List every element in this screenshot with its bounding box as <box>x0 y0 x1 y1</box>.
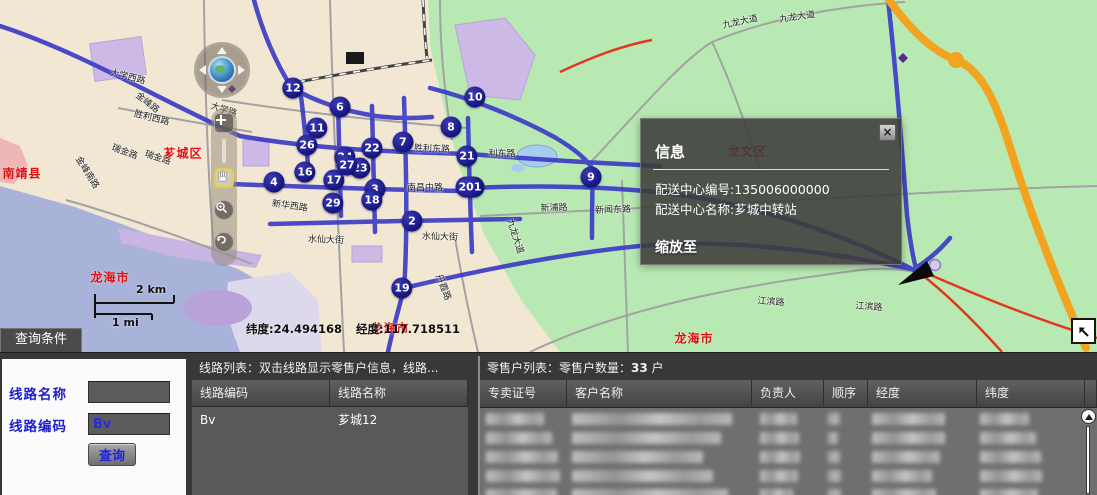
redacted-cell <box>872 413 945 425</box>
popup-close-button[interactable]: × <box>879 124 896 141</box>
map-pan-control[interactable] <box>194 42 250 98</box>
pan-hand-tool-button[interactable] <box>214 168 234 188</box>
redacted-cell <box>828 432 838 444</box>
retailer-row-redacted[interactable] <box>480 488 1097 495</box>
redacted-cell <box>828 451 840 463</box>
app-window: 金峰路大学西路瑞金路瑞金路金峰南路大学路胜利西路新华西路水仙大街水仙大街南昌中路… <box>0 0 1097 495</box>
redacted-cell <box>486 432 552 444</box>
retailer-row-redacted[interactable] <box>480 431 1097 446</box>
route-stop-marker-7[interactable]: 7 <box>393 132 414 153</box>
cursor-coordinates: 纬度:24.494168经度:117.718511 <box>246 321 474 337</box>
scale-km-label: 2 km <box>136 283 166 296</box>
route-stop-marker-6[interactable]: 6 <box>330 97 351 118</box>
retailer-row-redacted[interactable] <box>480 412 1097 427</box>
pan-left-arrow-icon[interactable] <box>199 65 206 75</box>
redacted-cell <box>872 432 945 444</box>
redacted-cell <box>572 432 721 444</box>
retailer-list-title: 零售户列表：零售户数量：33 户 <box>480 356 1097 381</box>
route-list-title: 线路列表：双击线路显示零售户信息，线路... <box>192 356 468 381</box>
bottom-panel: 线路名称 线路编码 查询 线路列表：双击线路显示零售户信息，线路... 线路编码… <box>0 352 1097 495</box>
magnifier-zoom-button[interactable] <box>214 200 234 220</box>
route-name-input[interactable] <box>88 381 170 403</box>
route-name-cell: 芗城12 <box>330 407 468 433</box>
tab-query-conditions[interactable]: 查询条件 <box>0 328 82 352</box>
route-code-label: 线路编码 <box>9 415 67 435</box>
pan-right-arrow-icon[interactable] <box>238 65 245 75</box>
redacted-cell <box>980 432 1036 444</box>
scrollbar-track[interactable] <box>1086 426 1090 494</box>
popup-divider <box>653 169 889 170</box>
collapse-panel-button[interactable] <box>1071 318 1096 344</box>
column-longitude[interactable]: 经度 <box>868 380 977 408</box>
redacted-cell <box>980 470 1042 482</box>
globe-icon[interactable] <box>208 56 236 84</box>
delivery-center-name: 配送中心名称:芗城中转站 <box>655 199 797 218</box>
zoom-to-link[interactable]: 缩放至 <box>655 237 697 257</box>
redacted-cell <box>828 413 840 425</box>
zoom-in-button[interactable] <box>214 113 234 133</box>
redacted-cell <box>760 489 793 495</box>
retailer-scrollbar <box>1081 409 1096 495</box>
route-stop-marker-8[interactable]: 8 <box>441 117 462 138</box>
redacted-cell <box>872 451 940 463</box>
route-name-label: 线路名称 <box>9 383 67 403</box>
query-button[interactable]: 查询 <box>88 443 136 466</box>
retailer-header-row: 专卖证号 客户名称 负责人 顺序 经度 纬度 <box>480 380 1097 408</box>
column-person-in-charge[interactable]: 负责人 <box>752 380 824 408</box>
redacted-cell <box>980 451 1041 463</box>
arrow-up-icon <box>1085 414 1093 420</box>
retailer-row-redacted[interactable] <box>480 469 1097 484</box>
redacted-cell <box>760 451 800 463</box>
redacted-cell <box>760 413 797 425</box>
retailer-count: 33 <box>631 361 648 375</box>
depot-dot <box>930 260 941 271</box>
redacted-cell <box>572 413 732 425</box>
redacted-cell <box>828 489 841 495</box>
redacted-cell <box>980 413 1029 425</box>
latitude-readout: 纬度:24.494168 <box>246 322 342 336</box>
route-list-header-row: 线路编码 线路名称 <box>192 380 468 407</box>
redacted-cell <box>760 470 798 482</box>
route-stop-marker-4[interactable]: 4 <box>264 172 285 193</box>
zoom-slider[interactable] <box>222 139 226 163</box>
longitude-readout: 经度:117.718511 <box>356 322 460 336</box>
retailer-row-redacted[interactable] <box>480 450 1097 465</box>
column-order[interactable]: 顺序 <box>824 380 868 408</box>
redacted-cell <box>872 470 932 482</box>
delivery-center-code: 配送中心编号:135006000000 <box>655 179 830 198</box>
previous-extent-button[interactable] <box>214 232 234 252</box>
column-customer-name[interactable]: 客户名称 <box>567 380 752 408</box>
redacted-cell <box>572 470 713 482</box>
retailer-list-body <box>480 408 1097 495</box>
route-row[interactable]: Bv 芗城12 <box>192 407 468 433</box>
query-form-panel: 线路名称 线路编码 查询 <box>2 359 186 495</box>
map-canvas[interactable]: 金峰路大学西路瑞金路瑞金路金峰南路大学路胜利西路新华西路水仙大街水仙大街南昌中路… <box>0 0 1097 352</box>
route-stop-marker-9[interactable]: 9 <box>581 167 602 188</box>
pan-down-arrow-icon[interactable] <box>217 86 227 93</box>
route-stop-marker-2[interactable]: 2 <box>402 211 423 232</box>
redacted-cell <box>486 413 544 425</box>
map-toolbar <box>211 108 237 266</box>
redacted-cell <box>572 451 703 463</box>
retailer-list-panel: 零售户列表：零售户数量：33 户 专卖证号 客户名称 负责人 顺序 经度 纬度 <box>478 356 1097 495</box>
column-license-no[interactable]: 专卖证号 <box>480 380 567 408</box>
redacted-cell <box>872 489 936 495</box>
route-code-cell: Bv <box>192 407 330 433</box>
column-scroll-spacer <box>1085 380 1097 408</box>
route-list-body: Bv 芗城12 <box>192 407 468 495</box>
pan-up-arrow-icon[interactable] <box>217 47 227 54</box>
scale-mi-label: 1 mi <box>112 316 139 329</box>
column-route-code[interactable]: 线路编码 <box>192 380 330 407</box>
route-list-panel: 线路列表：双击线路显示零售户信息，线路... 线路编码 线路名称 Bv 芗城12 <box>192 356 468 495</box>
redacted-cell <box>486 451 558 463</box>
redacted-cell <box>980 489 1038 495</box>
info-popup: × 信息 配送中心编号:135006000000 配送中心名称:芗城中转站 缩放… <box>640 118 902 265</box>
redacted-cell <box>486 489 557 495</box>
redacted-cell <box>760 432 799 444</box>
scroll-up-button[interactable] <box>1081 409 1096 424</box>
popup-title: 信息 <box>655 141 685 162</box>
route-code-input[interactable] <box>88 413 170 435</box>
column-latitude[interactable]: 纬度 <box>977 380 1085 408</box>
redacted-cell <box>828 470 841 482</box>
column-route-name[interactable]: 线路名称 <box>330 380 468 407</box>
redacted-cell <box>572 489 728 495</box>
redacted-cell <box>486 470 560 482</box>
route-stop-marker-201[interactable]: 201 <box>456 177 485 198</box>
